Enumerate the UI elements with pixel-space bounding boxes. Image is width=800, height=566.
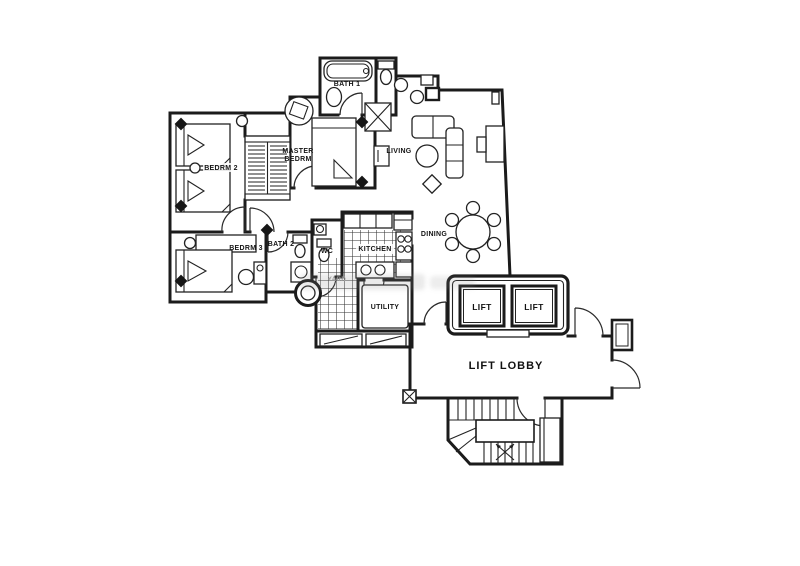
room-dining: DINING	[421, 202, 501, 263]
dining-chair	[488, 214, 501, 227]
toilet-bowl	[381, 70, 392, 85]
lift-lobby-label: LIFT LOBBY	[469, 360, 544, 372]
planter	[395, 79, 408, 92]
bedroom3-label: BEDRM 3	[229, 245, 263, 252]
counter	[344, 214, 392, 228]
stair-landing	[476, 420, 534, 442]
planter	[411, 91, 424, 104]
shoe-cabinet	[421, 75, 433, 85]
utility-label: UTILITY	[371, 304, 400, 311]
floor-trap	[403, 390, 416, 403]
room-bedroom2: BEDRM 2	[176, 116, 290, 213]
wall-tab	[492, 92, 499, 104]
chaise	[446, 128, 463, 178]
living-label: LIVING	[386, 148, 411, 155]
bath2-label: BATH 2	[268, 241, 295, 248]
fridge	[394, 214, 412, 230]
dining-chair	[467, 202, 480, 215]
wc-label: WC	[321, 248, 333, 255]
sink	[327, 88, 342, 107]
bedroom2-label: BEDRM 2	[204, 165, 238, 172]
louvre-vents	[320, 334, 406, 346]
master-label-line2: BEDRM	[284, 156, 311, 163]
lift-call-panel	[487, 330, 529, 337]
room-living: LIVING	[386, 75, 504, 193]
stair-closet	[540, 418, 560, 462]
floor-plan-drawing: BEDRM 2 BEDRM 3 MASTER BEDRM BATH 1	[0, 0, 800, 566]
floor-plan-page: BEDRM 2 BEDRM 3 MASTER BEDRM BATH 1	[0, 0, 800, 566]
dining-label: DINING	[421, 231, 448, 238]
ottoman	[423, 175, 441, 193]
dining-table	[456, 215, 490, 249]
bath1-label: BATH 1	[334, 81, 361, 88]
kitchen-label: KITCHEN	[358, 246, 391, 253]
room-wc: WC	[314, 224, 333, 262]
toilet-bowl	[295, 245, 305, 258]
dining-chair	[446, 214, 459, 227]
dining-chair	[446, 238, 459, 251]
coffee-table	[416, 145, 438, 167]
toilet-tank	[317, 239, 331, 247]
entry-post	[426, 88, 439, 100]
wall-fixture	[185, 238, 196, 249]
tv-cabinet	[486, 126, 504, 162]
side-table	[190, 163, 200, 173]
toilet-tank	[293, 235, 307, 243]
lift-right-label: LIFT	[524, 302, 544, 312]
riser-duct	[612, 320, 632, 350]
stool	[239, 270, 254, 285]
dining-chair	[488, 238, 501, 251]
room-bath1: BATH 1	[324, 61, 394, 107]
room-bedroom3: BEDRM 3	[176, 235, 266, 292]
lift-left-label: LIFT	[472, 302, 492, 312]
wall-fixture	[237, 116, 248, 127]
dining-chair	[467, 250, 480, 263]
toilet-tank	[378, 61, 394, 69]
master-label-line1: MASTER	[282, 148, 313, 155]
watermark-smudge	[300, 274, 475, 290]
dressing-chair	[285, 97, 313, 125]
